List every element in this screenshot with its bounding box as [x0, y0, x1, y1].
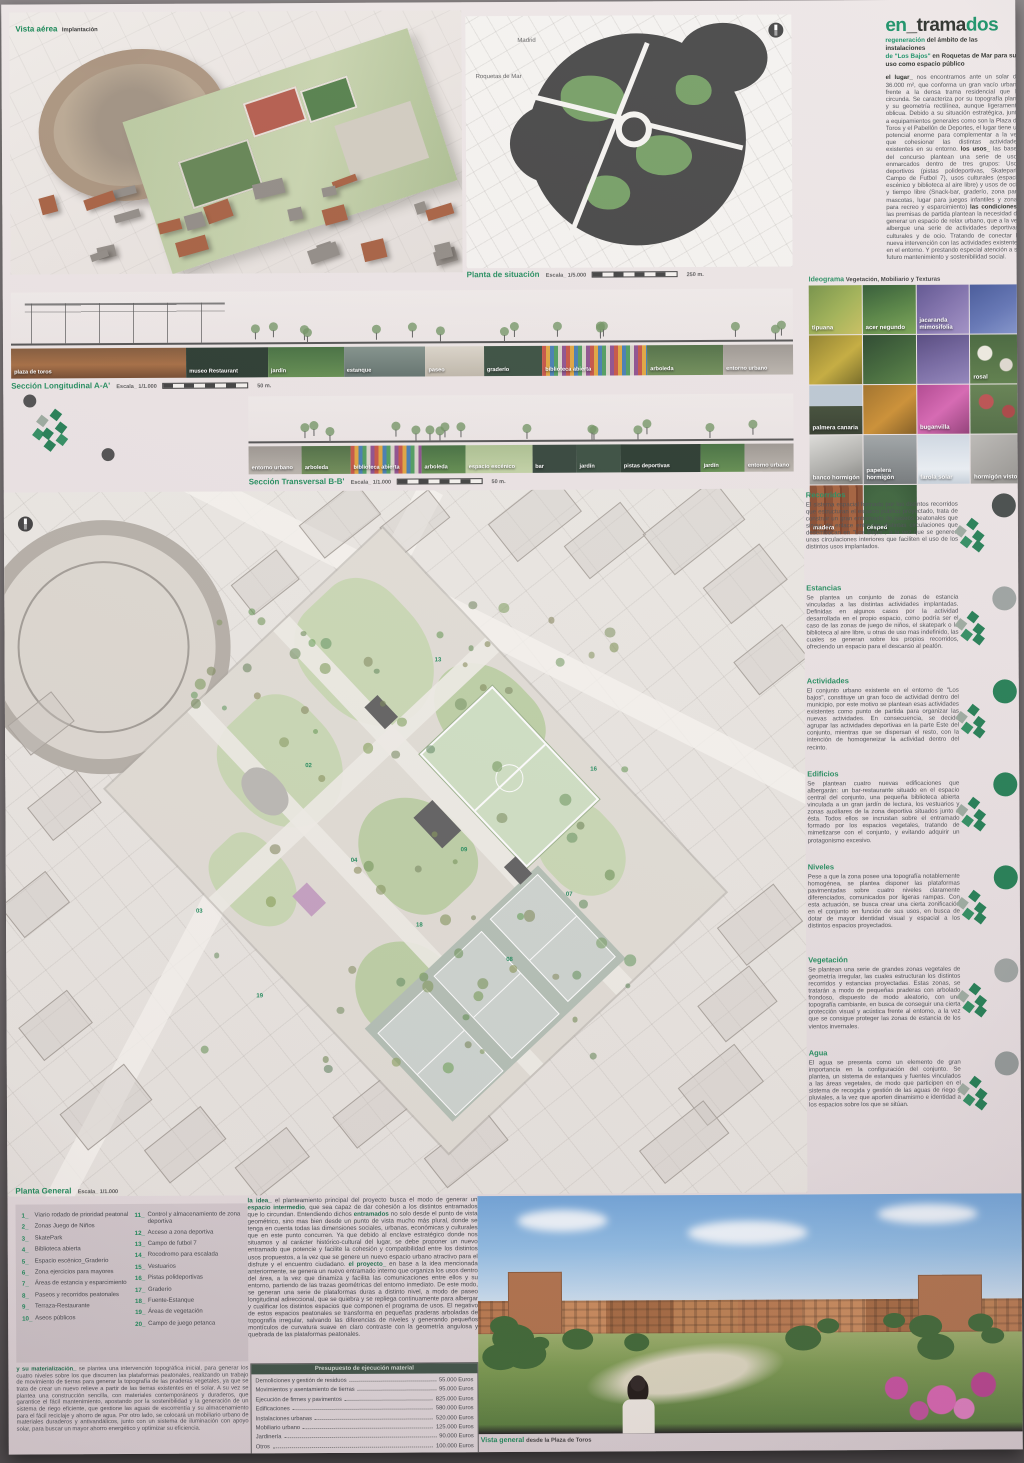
legend-item-number: 17_ — [135, 1286, 148, 1293]
strip-tile-label: plaza de toros — [14, 369, 52, 375]
legend-column-left: 1_ Viario rodado de prioridad peatonal 2… — [22, 1212, 130, 1355]
plan-scale: Escala_ 1/1.000 — [78, 1189, 118, 1195]
ideograma-tile — [970, 284, 1023, 333]
longitudinal-photo-strip: plaza de toros museo Restaurant jardín e… — [11, 345, 793, 379]
strip-tile-label: arboleda — [305, 465, 328, 471]
strip-photo-tile: arboleda — [421, 445, 465, 473]
scale-bar — [162, 382, 248, 388]
topic-diagram — [968, 958, 1020, 1018]
dotted-leader — [315, 1413, 433, 1420]
legend-item-label: Terraza-Restaurante — [35, 1303, 90, 1310]
plaza-aerial — [334, 101, 429, 183]
section-trees — [11, 289, 793, 293]
aerial-sublabel: Implantación — [62, 27, 98, 33]
topic-diagram — [967, 772, 1019, 832]
title-part-en: en — [885, 15, 906, 36]
topic-section: Edificios Se plantean cuatro nuevas edif… — [807, 768, 1023, 853]
ideograma-tile-label: hormigón visto — [974, 474, 1022, 481]
competition-poster: Vista aérea Implantación Madrid Roquetas… — [1, 0, 1023, 1455]
strip-photo-tile: jardín — [268, 347, 344, 377]
legend-item-number: 3_ — [22, 1235, 35, 1242]
aerial-view-image: Vista aérea Implantación — [9, 10, 462, 274]
topic-dot — [993, 772, 1017, 796]
ideograma-tile: farola solar — [917, 435, 970, 484]
legend-item-label: Aseos públicos — [35, 1315, 75, 1322]
strip-tile-label: jardín — [580, 464, 595, 470]
legend-item-number: 1_ — [22, 1213, 35, 1220]
scale-bar — [396, 478, 482, 484]
budget-row: Edificaciones 580.000 Euros — [256, 1403, 474, 1412]
legend-item: 8_ Paseos y recorridos peatonales — [22, 1292, 129, 1300]
title-block: en_tramados regeneración del ámbito de l… — [885, 15, 1020, 282]
ideograma-tile-label: papelera hormigón — [866, 468, 914, 481]
cloud — [688, 1220, 808, 1245]
legend-item-label: Graderío — [148, 1286, 172, 1293]
topic-diagram — [966, 586, 1018, 646]
ideograma-tile: acer negundo — [862, 285, 915, 334]
transversal-caption: Sección Transversal B-B' Escala_ 1/1.000… — [249, 475, 794, 487]
section-marker — [102, 448, 115, 461]
strip-tile-label: museo Restaurant — [189, 368, 238, 374]
longitudinal-scale-end: 50 m. — [257, 383, 271, 389]
legend-item-label: Zona ejercicios para mayores — [35, 1269, 114, 1276]
dotted-leader — [273, 1441, 433, 1448]
legend-item-number: 20_ — [135, 1321, 148, 1328]
cloud — [518, 1210, 608, 1232]
plan-caption: Planta General Escala_ 1/1.000 — [15, 1186, 118, 1196]
photo-caption: Vista general desde la Plaza de Toros — [481, 1437, 592, 1445]
budget-table: Presupuesto de ejecución material Demoli… — [250, 1362, 478, 1454]
ideograma-tile: palmera canaria — [809, 385, 862, 434]
ideograma-tile-label: acer negundo — [866, 325, 914, 332]
subtitle-regeneracion: regeneración — [885, 37, 925, 44]
legend-item-number: 2_ — [22, 1224, 35, 1231]
situation-label: Planta de situación — [467, 270, 540, 279]
cloud — [878, 1204, 978, 1225]
ideograma-tile — [863, 335, 916, 384]
ideograma-tile: papelera hormigón — [863, 435, 916, 484]
ideograma-tile-label: buganvilla — [920, 424, 968, 431]
legend-item-number: 12_ — [135, 1229, 148, 1236]
legend-item-number: 9_ — [22, 1304, 35, 1311]
aerial-buildings — [9, 10, 461, 12]
ideograma-sublabel: Vegetación, Mobiliario y Texturas — [844, 277, 940, 284]
legend-item-label: Rocodromo para escalada — [148, 1252, 218, 1259]
budget-row-label: Otros — [256, 1444, 270, 1450]
strip-photo-tile: museo Restaurant — [186, 347, 268, 377]
budget-row: Movimientos y asentamiento de tierras 95… — [255, 1385, 473, 1394]
budget-row-value: 90.000 Euros — [439, 1434, 474, 1440]
title-part-trama: _trama — [906, 15, 965, 36]
topic-text: Pese a que la zona posee una topografía … — [808, 873, 960, 930]
topic-fragment-diagram — [968, 797, 981, 810]
budget-rows: Demoliciones y gestión de residuos 55.00… — [255, 1375, 473, 1450]
legend-item-label: Áreas de vegetación — [148, 1309, 203, 1316]
situation-plan: Madrid Roquetas de Mar — [465, 15, 792, 269]
plan-label: Planta General — [15, 1186, 71, 1195]
legend-item-label: Fuente-Estanque — [148, 1298, 194, 1305]
topic-section: Recorridos El sistema espacial formado p… — [806, 489, 1023, 574]
strip-tile-label: arboleda — [650, 366, 673, 372]
dotted-leader — [303, 1422, 433, 1429]
budget-row: Mobiliario urbano 125.000 Euros — [256, 1422, 474, 1431]
ideograma-tile: hormigón visto — [971, 434, 1023, 483]
strip-photo-tile: arboleda — [302, 446, 351, 474]
topic-dot — [994, 958, 1018, 982]
transversal-scale: Escala_ 1/1.000 — [351, 480, 391, 486]
ideograma-tile-label: farola solar — [920, 474, 968, 481]
strip-tile-label: jardín — [271, 368, 286, 374]
strip-photo-tile: estanque — [344, 346, 426, 376]
legend-item-number: 11_ — [135, 1212, 148, 1225]
ideograma-block: Ideograma Vegetación, Mobiliario y Textu… — [809, 275, 1023, 490]
map-label-roquetas: Roquetas de Mar — [476, 74, 522, 80]
strip-photo-tile: entorno urbano — [723, 345, 793, 375]
idea-text: la idea_ el planteamiento principal del … — [247, 1196, 478, 1359]
legend-item: 9_ Terraza-Restaurante — [22, 1303, 129, 1311]
strip-photo-tile: jardín — [576, 444, 620, 472]
strip-photo-tile: espacio escénico — [466, 445, 533, 473]
photo-caption-sub: desde la Plaza de Toros — [526, 1438, 591, 1444]
strip-tile-label: entorno urbano — [748, 463, 789, 469]
section-key-diagram — [17, 392, 129, 481]
budget-row-value: 55.000 Euros — [439, 1377, 474, 1383]
topic-text: El sistema espacial formado por los dist… — [806, 501, 958, 551]
topic-text: El conjunto urbano existente en el entor… — [807, 687, 959, 751]
legend-item: 6_ Zona ejercicios para mayores — [22, 1269, 129, 1277]
strip-tile-label: graderío — [487, 367, 509, 373]
topic-diagram — [969, 1051, 1021, 1111]
legend-item-label: Campo de juego petanca — [148, 1320, 215, 1327]
legend-item-number: 5_ — [22, 1258, 35, 1265]
topic-section: Niveles Pese a que la zona posee una top… — [808, 861, 1023, 946]
budget-row-value: 580.000 Euros — [436, 1405, 474, 1411]
budget-row: Ejecución de firmes y pavimentos 825.000… — [255, 1394, 473, 1403]
legend-column-right: 11_ Control y almacenamiento de zona dep… — [135, 1211, 243, 1354]
budget-row: Instalaciones urbanas 520.000 Euros — [256, 1413, 474, 1422]
plan-trees — [4, 488, 804, 492]
strip-tile-label: jardín — [704, 463, 719, 469]
legend-item: 20_ Campo de juego petanca — [135, 1320, 242, 1328]
legend-item-number: 4_ — [22, 1247, 35, 1254]
legend-item-number: 8_ — [22, 1292, 35, 1299]
legend-item: 16_ Pistas polideportivas — [135, 1275, 242, 1283]
legend-item: 11_ Control y almacenamiento de zona dep… — [135, 1211, 242, 1225]
situation-scale: Escala_ 1/5.000 — [546, 273, 586, 279]
ideograma-tile-label: banco hormigón — [813, 475, 861, 482]
section-trees — [248, 394, 793, 397]
legend-item: 19_ Áreas de vegetación — [135, 1309, 242, 1317]
ideograma-tile — [809, 335, 862, 384]
ideograma-tile-label: rosal — [973, 374, 1021, 381]
legend-item-label: Acceso a zona deportiva — [148, 1229, 214, 1236]
legend-item-label: Biblioteca abierta — [35, 1246, 81, 1253]
budget-row: Otros 100.000 Euros — [256, 1441, 474, 1450]
strip-photo-tile: arboleda — [647, 345, 723, 375]
plan-legend: 1_ Viario rodado de prioridad peatonal 2… — [15, 1203, 248, 1362]
strip-photo-tile: jardín — [700, 444, 744, 472]
legend-item-number: 18_ — [135, 1298, 148, 1305]
strip-tile-label: pistas deportivas — [624, 463, 670, 469]
legend-item-label: Zonas Juego de Niños — [35, 1224, 95, 1231]
budget-row-label: Instalaciones urbanas — [256, 1416, 312, 1422]
stadium-sketch — [25, 302, 225, 343]
strip-tile-label: biblioteca abierta — [354, 465, 400, 471]
strip-tile-label: arboleda — [424, 464, 447, 470]
strip-tile-label: entorno urbano — [726, 366, 767, 372]
strip-tile-label: entorno urbano — [252, 465, 293, 471]
legend-item: 14_ Rocodromo para escalada — [135, 1252, 242, 1260]
strip-tile-label: biblioteca abierta — [545, 367, 591, 373]
transversal-label: Sección Transversal B-B' — [249, 477, 345, 487]
topic-fragment-diagram — [966, 518, 979, 531]
ideograma-tile-label: palmera canaria — [812, 425, 860, 432]
strip-photo-tile: plaza de toros — [11, 348, 186, 379]
person-foreground — [618, 1375, 658, 1433]
flower-bed — [866, 1363, 1016, 1424]
roundabout — [616, 111, 652, 147]
park-path — [573, 1327, 797, 1420]
materializacion-text: y su materialización_ se plantea una int… — [16, 1365, 248, 1452]
strip-photo-tile: graderío — [484, 346, 543, 376]
legend-item-number: 10_ — [22, 1315, 35, 1322]
plan-number-labels: 13160304090219081807 — [4, 488, 804, 492]
legend-item-number: 14_ — [135, 1252, 148, 1259]
ideograma-header: Ideograma Vegetación, Mobiliario y Textu… — [809, 275, 1023, 283]
topic-fragment-diagram — [969, 1076, 982, 1089]
situation-caption: Planta de situación Escala_ 1/5.000 250 … — [467, 269, 704, 279]
strip-tile-label: estanque — [347, 368, 372, 374]
topic-dot — [992, 586, 1016, 610]
legend-item-label: Viario rodado de prioridad peatonal — [35, 1212, 129, 1219]
ideograma-tile: rosal — [970, 334, 1023, 383]
ideograma-tile — [863, 385, 916, 434]
topic-dot — [993, 679, 1017, 703]
legend-item-label: Espacio escénico_Graderío — [35, 1258, 109, 1265]
legend-item-label: Vestuarios — [148, 1264, 176, 1271]
budget-row-value: 100.000 Euros — [436, 1443, 474, 1449]
legend-item: 15_ Vestuarios — [135, 1263, 242, 1271]
topic-text: El agua se presenta como un elemento de … — [809, 1059, 961, 1109]
strip-photo-tile: bar — [532, 445, 576, 473]
dotted-leader — [284, 1432, 436, 1439]
legend-item: 10_ Aseos públicos — [22, 1315, 129, 1323]
topic-fragment-diagram — [967, 704, 980, 717]
legend-item-label: Pistas polideportivas — [148, 1275, 203, 1282]
strip-photo-tile: entorno urbano — [745, 444, 794, 472]
legend-item: 3_ SkatePark — [22, 1235, 129, 1243]
map-label-madrid: Madrid — [517, 38, 535, 44]
strip-photo-tile: biblioteca abierta — [542, 345, 647, 376]
legend-item-number: 15_ — [135, 1264, 148, 1271]
topic-dot — [994, 865, 1018, 889]
ideograma-tile: jacaranda mimosifolia — [916, 285, 969, 334]
budget-row: Jardinería 90.000 Euros — [256, 1432, 474, 1441]
legend-item: 17_ Graderío — [135, 1286, 242, 1294]
pink-building — [292, 883, 326, 917]
topic-fragment-diagram — [967, 611, 980, 624]
legend-item-number: 16_ — [135, 1275, 148, 1282]
topic-section: Agua El agua se presenta como un element… — [809, 1047, 1023, 1132]
budget-row-label: Jardinería — [256, 1435, 282, 1441]
title-part-dos: dos — [966, 14, 998, 35]
court-red-1 — [243, 86, 307, 138]
topic-section: Vegetación Se plantean una serie de gran… — [808, 954, 1023, 1039]
legend-item-number: 19_ — [135, 1309, 148, 1316]
strip-photo-tile: entorno urbano — [249, 446, 302, 474]
photo-caption-label: Vista general — [481, 1437, 524, 1444]
legend-item: 12_ Acceso a zona deportiva — [135, 1229, 242, 1237]
photo-trees — [477, 1193, 1021, 1196]
legend-item: 13_ Campo de futbol 7 — [135, 1240, 242, 1248]
budget-row-label: Edificaciones — [256, 1406, 290, 1412]
longitudinal-section: plaza de toros museo Restaurant jardín e… — [11, 289, 794, 391]
dotted-leader — [350, 1375, 436, 1381]
topic-dot — [995, 1051, 1019, 1075]
longitudinal-caption: Sección Longitudinal A-A' Escala_ 1/1.00… — [11, 378, 793, 391]
topic-diagram — [966, 493, 1018, 553]
strip-tile-label: espacio escénico — [469, 464, 515, 470]
longitudinal-drawing — [11, 289, 793, 349]
ideograma-tile — [916, 335, 969, 384]
legend-item: 4_ Biblioteca abierta — [22, 1246, 129, 1254]
longitudinal-label: Sección Longitudinal A-A' — [11, 381, 110, 391]
legend-item: 1_ Viario rodado de prioridad peatonal — [22, 1212, 129, 1220]
scale-bar — [591, 271, 677, 277]
ideograma-label: Ideograma — [809, 276, 844, 283]
strip-photo-tile: paseo — [425, 346, 484, 376]
legend-item: 7_ Áreas de estancia y esparcimiento — [22, 1280, 129, 1288]
strip-tile-label: bar — [535, 464, 544, 470]
project-subtitle: regeneración del ámbito de las instalaci… — [885, 36, 1019, 68]
legend-item-label: SkatePark — [35, 1235, 63, 1242]
north-arrow-icon — [768, 23, 783, 38]
person-head — [630, 1375, 645, 1391]
context-buildings — [4, 488, 804, 492]
transversal-scale-end: 50 m. — [492, 479, 506, 485]
strip-tile-label: paseo — [428, 367, 444, 373]
topic-section: Estancias Se plantea un conjunto de zona… — [806, 582, 1023, 667]
transversal-drawing — [248, 394, 793, 447]
legend-item-number: 13_ — [135, 1241, 148, 1248]
intro-text: el lugar_ nos encontramos ante un solar … — [886, 74, 1021, 262]
section-marker — [23, 394, 36, 407]
ideograma-tile: tipuana — [809, 285, 862, 334]
budget-row: Demoliciones y gestión de residuos 55.00… — [255, 1375, 473, 1384]
strip-photo-tile: pistas deportivas — [621, 444, 701, 472]
ideograma-tile: buganvilla — [917, 385, 970, 434]
budget-row-label: Movimientos y asentamiento de tierras — [255, 1387, 354, 1394]
longitudinal-scale: Escala_ 1/1.000 — [116, 384, 156, 390]
site-key-blobs — [50, 409, 63, 422]
court-green — [300, 75, 358, 123]
budget-row-value: 125.000 Euros — [436, 1424, 474, 1430]
topic-text: Se plantea un conjunto de zonas de estan… — [806, 594, 958, 651]
topic-text: Se plantean cuatro nuevas edificaciones … — [807, 780, 959, 844]
budget-row-label: Demoliciones y gestión de residuos — [255, 1378, 346, 1384]
dotted-leader — [345, 1394, 433, 1400]
dotted-leader — [293, 1404, 433, 1411]
person-body — [623, 1399, 655, 1433]
dotted-leader — [358, 1385, 436, 1391]
topic-diagram — [967, 679, 1019, 739]
budget-total-row: PEM 3.200.000 Euros — [256, 1454, 474, 1455]
topic-section: Actividades El conjunto urbano existente… — [807, 675, 1023, 760]
ideograma-tile-label: jacaranda mimosifolia — [919, 318, 967, 331]
ideograma-tile — [970, 384, 1022, 433]
rendered-view-image — [477, 1193, 1022, 1434]
aerial-label: Vista aérea — [15, 24, 57, 33]
transversal-photo-strip: entorno urbano arboleda biblioteca abier… — [249, 444, 794, 475]
green-area — [676, 75, 712, 105]
ideograma-tile-label: tipuana — [812, 325, 860, 332]
legend-item-label: Paseos y recorridos peatonales — [35, 1292, 119, 1299]
situation-scale-end: 250 m. — [687, 272, 704, 278]
legend-item: 2_ Zonas Juego de Niños — [22, 1223, 129, 1231]
subtitle-espacio: como espacio público — [898, 60, 964, 67]
topic-dot — [992, 493, 1016, 517]
budget-row-value: 825.000 Euros — [436, 1396, 474, 1402]
budget-row-label: Ejecución de firmes y pavimentos — [256, 1397, 342, 1403]
legend-item-label: Áreas de estancia y esparcimiento — [35, 1280, 127, 1287]
budget-header: Presupuesto de ejecución material — [251, 1363, 477, 1374]
legend-item-label: Campo de futbol 7 — [148, 1241, 197, 1248]
topic-text: Se plantean una serie de grandes zonas v… — [808, 966, 960, 1030]
topics-column: Recorridos El sistema espacial formado p… — [806, 489, 1023, 1192]
budget-row-label: Mobiliario urbano — [256, 1425, 300, 1431]
strip-photo-tile: biblioteca abierta — [350, 445, 421, 473]
legend-item: 18_ Fuente-Estanque — [135, 1297, 242, 1305]
project-title: en_tramados — [885, 15, 1019, 35]
topic-fragment-diagram — [969, 983, 982, 996]
legend-item: 5_ Espacio escénico_Graderío — [22, 1258, 129, 1266]
north-arrow-icon — [18, 517, 33, 532]
topic-fragment-diagram — [968, 890, 981, 903]
master-plan: 13160304090219081807 — [4, 488, 808, 1196]
budget-row-value: 95.000 Euros — [439, 1387, 474, 1393]
ideograma-tile: banco hormigón — [809, 435, 862, 484]
legend-item-label: Control y almacenamiento de zona deporti… — [148, 1211, 242, 1225]
transversal-section: entorno urbano arboleda biblioteca abier… — [248, 394, 793, 487]
topic-diagram — [968, 865, 1020, 925]
subtitle-losbajos: de "Los Bajos" — [885, 53, 930, 60]
legend-item-number: 6_ — [22, 1269, 35, 1276]
legend-item-number: 7_ — [22, 1281, 35, 1288]
budget-row-value: 520.000 Euros — [436, 1415, 474, 1421]
football-field-aerial — [178, 139, 264, 210]
